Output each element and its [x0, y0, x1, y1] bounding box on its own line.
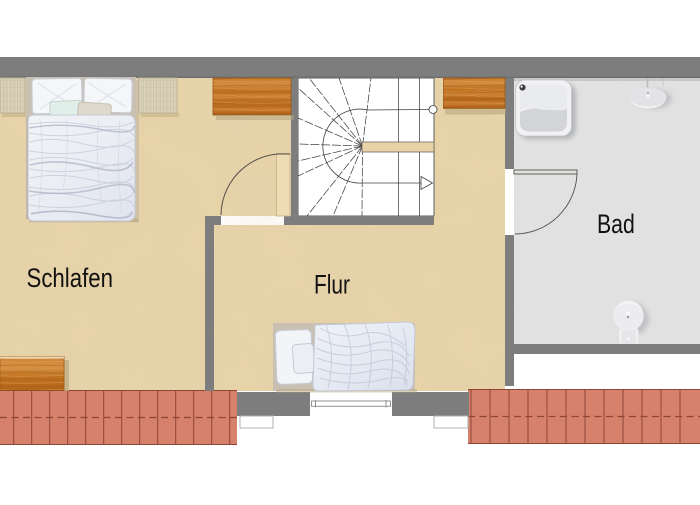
svg-text:Bad: Bad — [597, 209, 635, 239]
svg-text:Schlafen: Schlafen — [27, 263, 114, 293]
svg-text:Flur: Flur — [314, 270, 350, 300]
